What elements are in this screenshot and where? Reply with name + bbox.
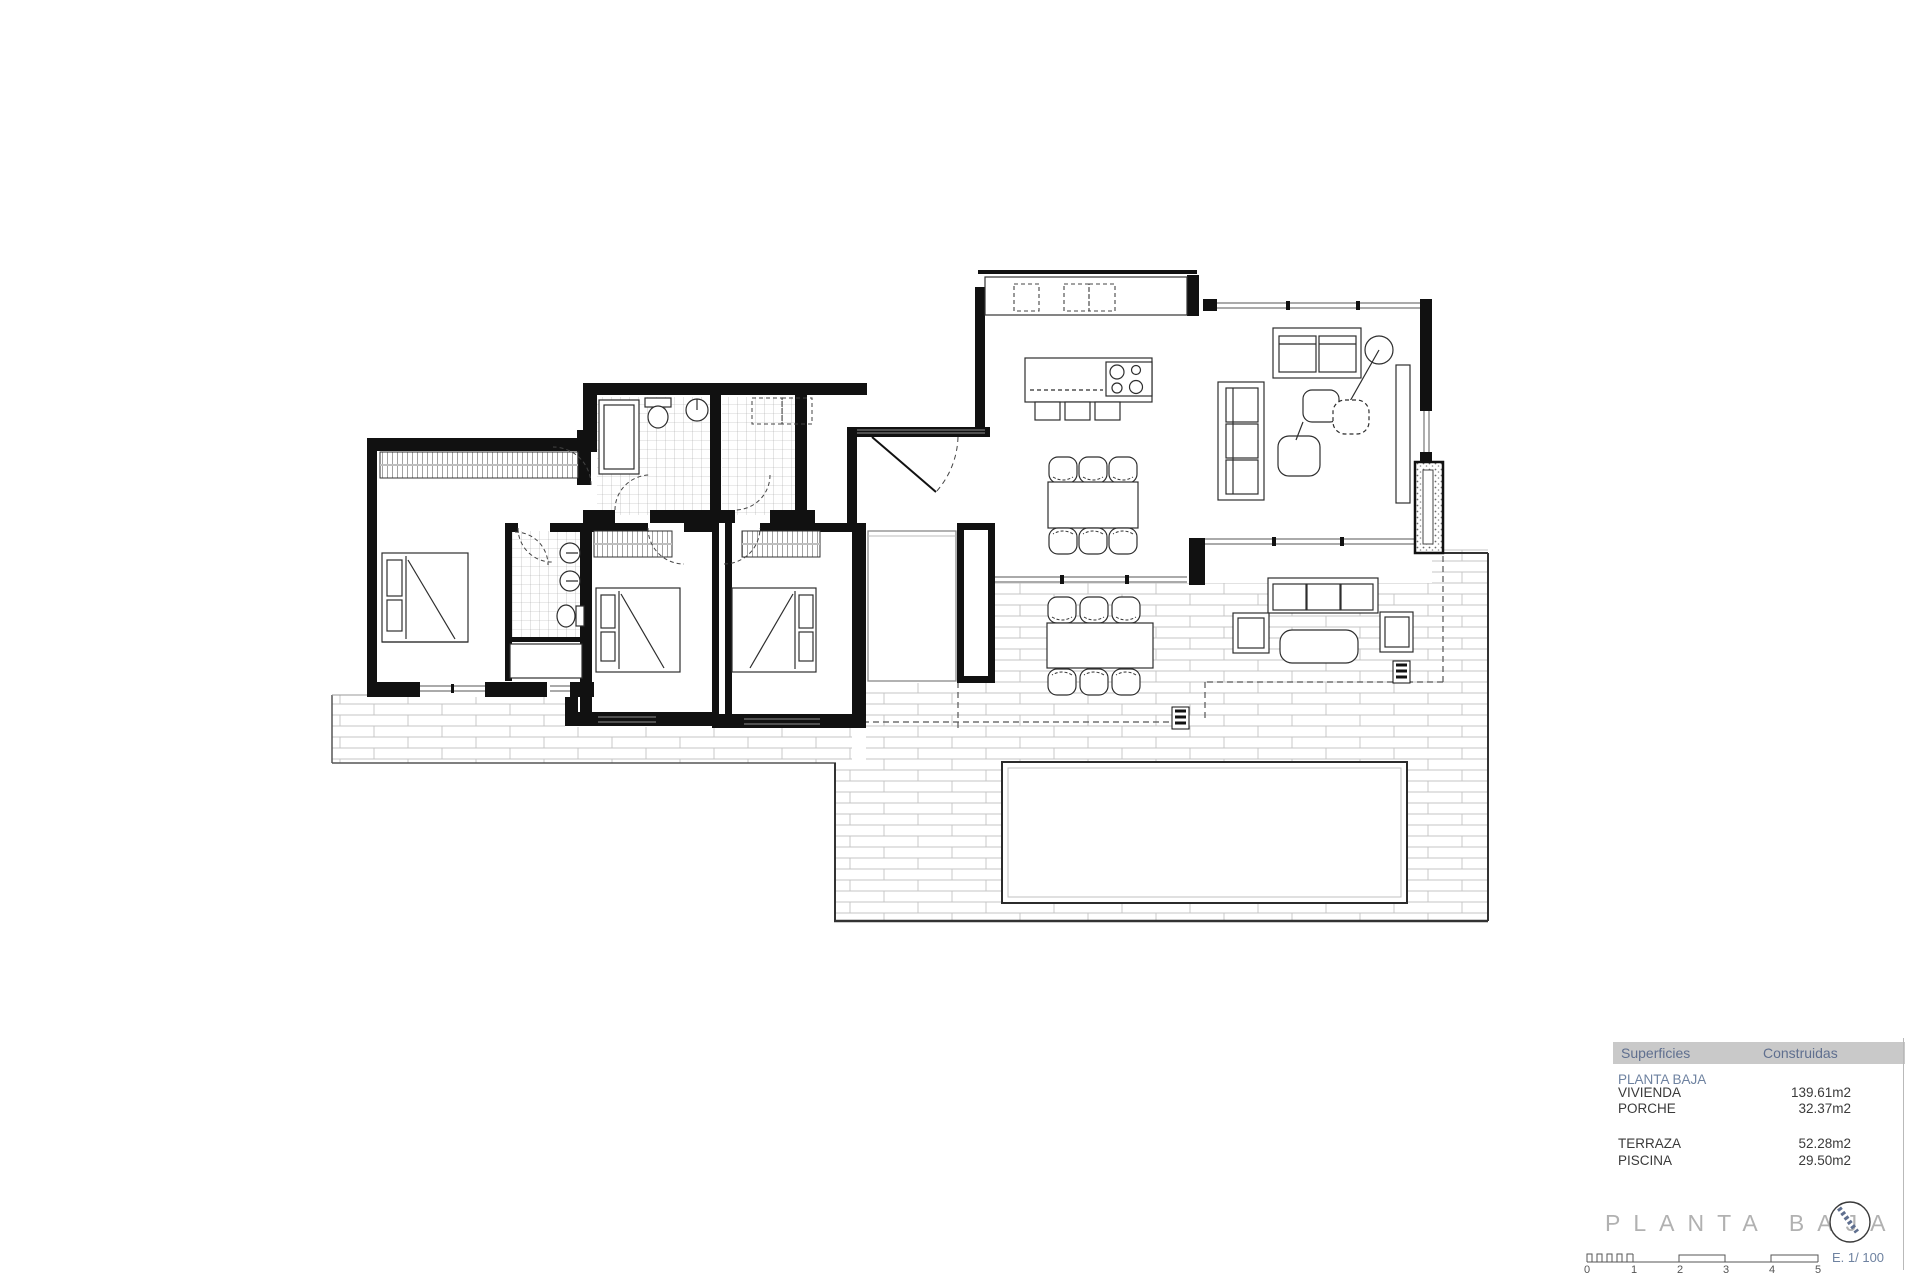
- sofa-side: [1218, 382, 1264, 500]
- wall-shelf: [1396, 365, 1410, 503]
- legend-col-construidas: Construidas: [1763, 1045, 1838, 1061]
- scale-label: E. 1/ 100: [1832, 1250, 1884, 1265]
- legend-header: Superficies Construidas: [1613, 1042, 1905, 1064]
- scale-tick-1: 1: [1627, 1264, 1641, 1276]
- indoor-dining-set: [1048, 457, 1138, 554]
- scale-tick-0: 0: [1580, 1264, 1594, 1276]
- legend-col-superficies: Superficies: [1621, 1045, 1690, 1061]
- scale-tick-2: 2: [1673, 1264, 1687, 1276]
- bed-1-icon: [382, 553, 468, 642]
- storage-room: [868, 531, 956, 681]
- scale-tick-5: 5: [1811, 1264, 1825, 1276]
- north-indicator-icon: [1824, 1196, 1876, 1248]
- legend-row-terraza: TERRAZA 52.28m2: [1613, 1136, 1851, 1151]
- scale-bar: [1580, 1246, 1830, 1268]
- surface-legend: Superficies Construidas PLANTA BAJA VIVI…: [1613, 1042, 1905, 1064]
- chimney: [1415, 462, 1443, 553]
- sofa-top: [1273, 328, 1361, 378]
- legend-row-piscina: PISCINA 29.50m2: [1613, 1153, 1851, 1168]
- scale-tick-3: 3: [1719, 1264, 1733, 1276]
- kitchen-north-band: [978, 272, 1197, 315]
- scale-tick-4: 4: [1765, 1264, 1779, 1276]
- legend-row-vivienda: VIVIENDA 139.61m2: [1613, 1085, 1851, 1100]
- bed-3-icon: [732, 588, 816, 672]
- bed-2-icon: [596, 588, 680, 672]
- outdoor-dining-set: [1047, 597, 1153, 695]
- swimming-pool: [1002, 762, 1407, 903]
- legend-row-porche: PORCHE 32.37m2: [1613, 1101, 1851, 1116]
